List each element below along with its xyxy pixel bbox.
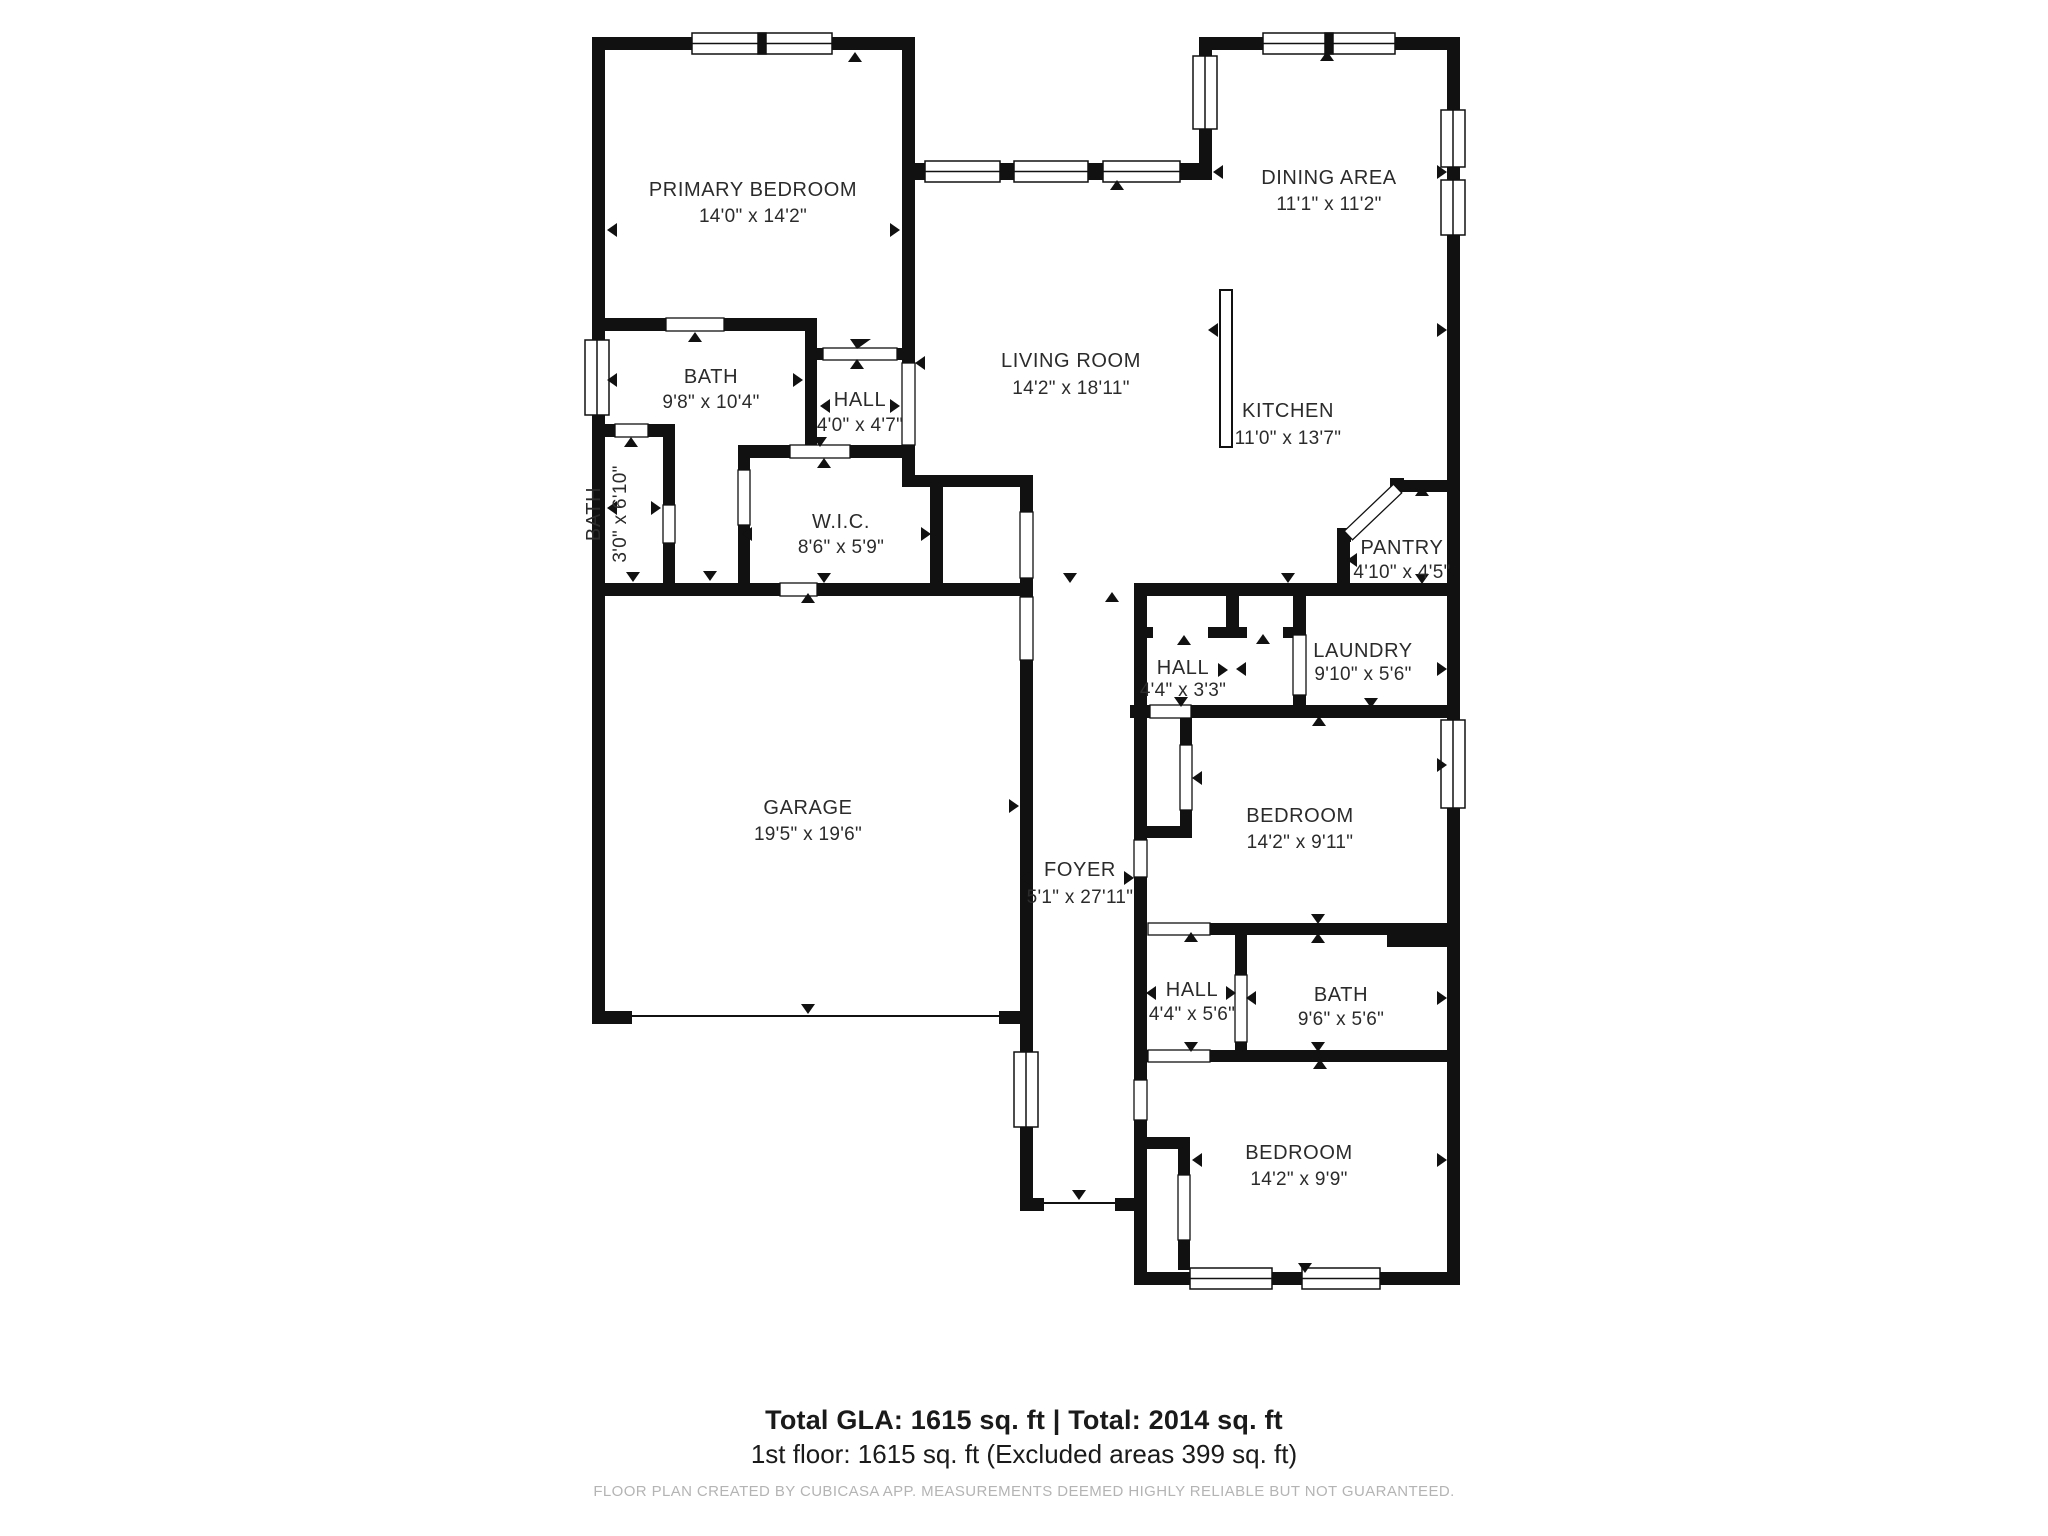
svg-text:3'0" x 6'10": 3'0" x 6'10"	[610, 465, 631, 562]
svg-text:4'4" x 5'6": 4'4" x 5'6"	[1149, 1004, 1235, 1025]
svg-text:LIVING ROOM: LIVING ROOM	[1001, 350, 1141, 372]
total-area-summary: Total GLA: 1615 sq. ft | Total: 2014 sq.…	[0, 1405, 2048, 1436]
svg-text:KITCHEN: KITCHEN	[1242, 400, 1334, 422]
window-primary-bedroom	[692, 33, 832, 54]
svg-text:BATH: BATH	[684, 366, 738, 388]
kitchen-island	[1220, 290, 1232, 447]
svg-text:9'6" x 5'6": 9'6" x 5'6"	[1298, 1009, 1384, 1030]
disclaimer-caption: FLOOR PLAN CREATED BY CUBICASA APP. MEAS…	[0, 1483, 2048, 1500]
room-label-wic: W.I.C. 8'6" x 5'9"	[798, 511, 884, 558]
svg-text:5'1" x 27'11": 5'1" x 27'11"	[1027, 887, 1134, 908]
svg-text:HALL: HALL	[834, 389, 886, 411]
svg-text:LAUNDRY: LAUNDRY	[1313, 640, 1412, 662]
svg-text:14'2" x 9'9": 14'2" x 9'9"	[1250, 1169, 1347, 1190]
svg-text:9'10" x 5'6": 9'10" x 5'6"	[1314, 664, 1411, 685]
svg-text:14'2" x 18'11": 14'2" x 18'11"	[1012, 378, 1130, 399]
window-bath-left	[585, 340, 609, 415]
room-label-living-room: LIVING ROOM 14'2" x 18'11"	[1001, 350, 1141, 399]
room-label-foyer: FOYER 5'1" x 27'11"	[1027, 859, 1134, 908]
window-dining-left	[1193, 56, 1217, 129]
window-foyer	[1014, 1052, 1038, 1127]
room-label-pantry: PANTRY 4'10" x 4'5"	[1353, 537, 1450, 583]
svg-text:4'4" x 3'3": 4'4" x 3'3"	[1140, 680, 1226, 701]
svg-text:GARAGE: GARAGE	[763, 797, 852, 819]
svg-text:BATH: BATH	[1314, 984, 1368, 1006]
svg-text:HALL: HALL	[1157, 657, 1209, 679]
room-label-bedroom-3: BEDROOM 14'2" x 9'9"	[1245, 1142, 1353, 1190]
room-label-hall-middle: HALL 4'4" x 3'3"	[1140, 657, 1226, 701]
svg-text:14'0" x 14'2": 14'0" x 14'2"	[699, 206, 807, 227]
svg-text:PRIMARY BEDROOM: PRIMARY BEDROOM	[649, 179, 857, 201]
svg-text:DINING AREA: DINING AREA	[1261, 167, 1397, 189]
svg-text:9'8" x 10'4": 9'8" x 10'4"	[662, 392, 759, 413]
room-label-primary-bedroom: PRIMARY BEDROOM 14'0" x 14'2"	[649, 179, 857, 227]
svg-text:14'2" x 9'11": 14'2" x 9'11"	[1247, 832, 1354, 853]
svg-text:BEDROOM: BEDROOM	[1245, 1142, 1353, 1164]
svg-text:19'5" x 19'6": 19'5" x 19'6"	[754, 824, 862, 845]
svg-text:FOYER: FOYER	[1044, 859, 1116, 881]
door-frames	[615, 318, 1402, 1240]
floor-plan-page: PRIMARY BEDROOM 14'0" x 14'2" BATH 9'8" …	[0, 0, 2048, 1536]
room-label-garage: GARAGE 19'5" x 19'6"	[754, 797, 862, 845]
room-label-kitchen: KITCHEN 11'0" x 13'7"	[1235, 400, 1342, 449]
floor-plan-drawing: PRIMARY BEDROOM 14'0" x 14'2" BATH 9'8" …	[0, 0, 2048, 1536]
svg-text:4'10" x 4'5": 4'10" x 4'5"	[1353, 562, 1450, 583]
svg-text:W.I.C.: W.I.C.	[812, 511, 870, 533]
svg-text:BATH: BATH	[583, 487, 605, 541]
svg-text:HALL: HALL	[1166, 979, 1218, 1001]
room-label-bath-small: BATH 3'0" x 6'10"	[583, 465, 631, 562]
room-label-bedroom-2: BEDROOM 14'2" x 9'11"	[1246, 805, 1354, 853]
room-label-bath-2: BATH 9'6" x 5'6"	[1298, 984, 1384, 1030]
room-label-dining-area: DINING AREA 11'1" x 11'2"	[1261, 167, 1397, 215]
svg-text:PANTRY: PANTRY	[1361, 537, 1444, 559]
window-living-band	[925, 161, 1180, 182]
svg-text:11'0" x 13'7": 11'0" x 13'7"	[1235, 428, 1342, 449]
room-label-hall-lower: HALL 4'4" x 5'6"	[1149, 979, 1235, 1025]
room-label-laundry: LAUNDRY 9'10" x 5'6"	[1313, 640, 1412, 685]
svg-text:4'0" x 4'7": 4'0" x 4'7"	[817, 415, 903, 436]
svg-text:BEDROOM: BEDROOM	[1246, 805, 1354, 827]
room-label-bath-main: BATH 9'8" x 10'4"	[662, 366, 759, 413]
floor-area-detail: 1st floor: 1615 sq. ft (Excluded areas 3…	[0, 1439, 2048, 1470]
svg-text:8'6" x 5'9": 8'6" x 5'9"	[798, 537, 884, 558]
window-dining-top	[1263, 33, 1395, 54]
svg-text:11'1" x 11'2": 11'1" x 11'2"	[1276, 194, 1381, 215]
